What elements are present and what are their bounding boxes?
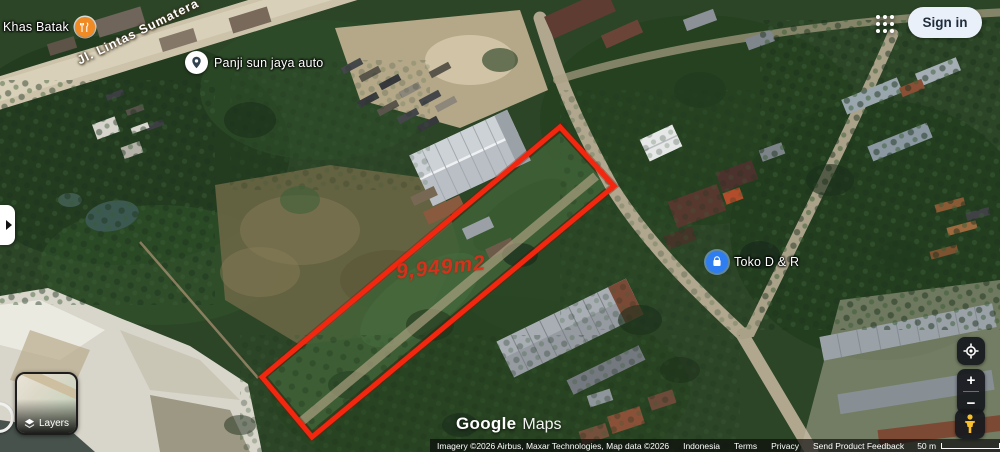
my-location-button[interactable]	[957, 337, 985, 365]
feedback-link[interactable]: Send Product Feedback	[813, 441, 904, 451]
layers-control[interactable]: Layers	[15, 372, 78, 435]
scale-label: 50 m	[917, 441, 936, 451]
my-location-icon	[963, 343, 979, 359]
restaurant-icon	[75, 17, 95, 37]
poi-panji-sun-jaya-auto[interactable]: Panji sun jaya auto	[185, 51, 323, 74]
side-panel-expand-button[interactable]	[0, 205, 15, 245]
poi-label: Khas Batak	[3, 20, 69, 34]
attribution-bar: Imagery ©2026 Airbus, Maxar Technologies…	[430, 439, 1000, 452]
terms-link[interactable]: Terms	[734, 441, 757, 451]
layers-label: Layers	[39, 418, 69, 429]
poi-toko-d-r[interactable]: Toko D & R	[706, 251, 799, 273]
google-wordmark: Google	[456, 414, 516, 434]
sign-in-button[interactable]: Sign in	[908, 7, 982, 38]
pegman-icon	[963, 414, 977, 434]
region-link[interactable]: Indonesia	[683, 441, 720, 451]
zoom-control: + −	[957, 369, 985, 414]
shop-bag-icon	[706, 251, 728, 273]
scale-bar	[941, 443, 1000, 449]
zoom-in-button[interactable]: +	[957, 369, 985, 391]
satellite-imagery[interactable]	[0, 0, 1000, 452]
poi-label: Panji sun jaya auto	[214, 56, 323, 70]
google-maps-app: Jl. Lintas Sumatera 9,949m2 Khas Batak P…	[0, 0, 1000, 452]
chevron-right-icon	[6, 220, 12, 230]
layers-icon	[24, 418, 35, 429]
place-pin-icon	[185, 51, 208, 74]
poi-label: Toko D & R	[734, 255, 799, 269]
poi-khas-batak[interactable]: Khas Batak	[3, 17, 95, 37]
apps-grid-icon[interactable]	[874, 13, 896, 35]
privacy-link[interactable]: Privacy	[771, 441, 799, 451]
imagery-credit: Imagery ©2026 Airbus, Maxar Technologies…	[437, 441, 669, 451]
maps-wordmark: Maps	[522, 416, 561, 434]
street-view-pegman-button[interactable]	[955, 409, 985, 439]
google-maps-logo[interactable]: Google Maps	[456, 414, 561, 434]
